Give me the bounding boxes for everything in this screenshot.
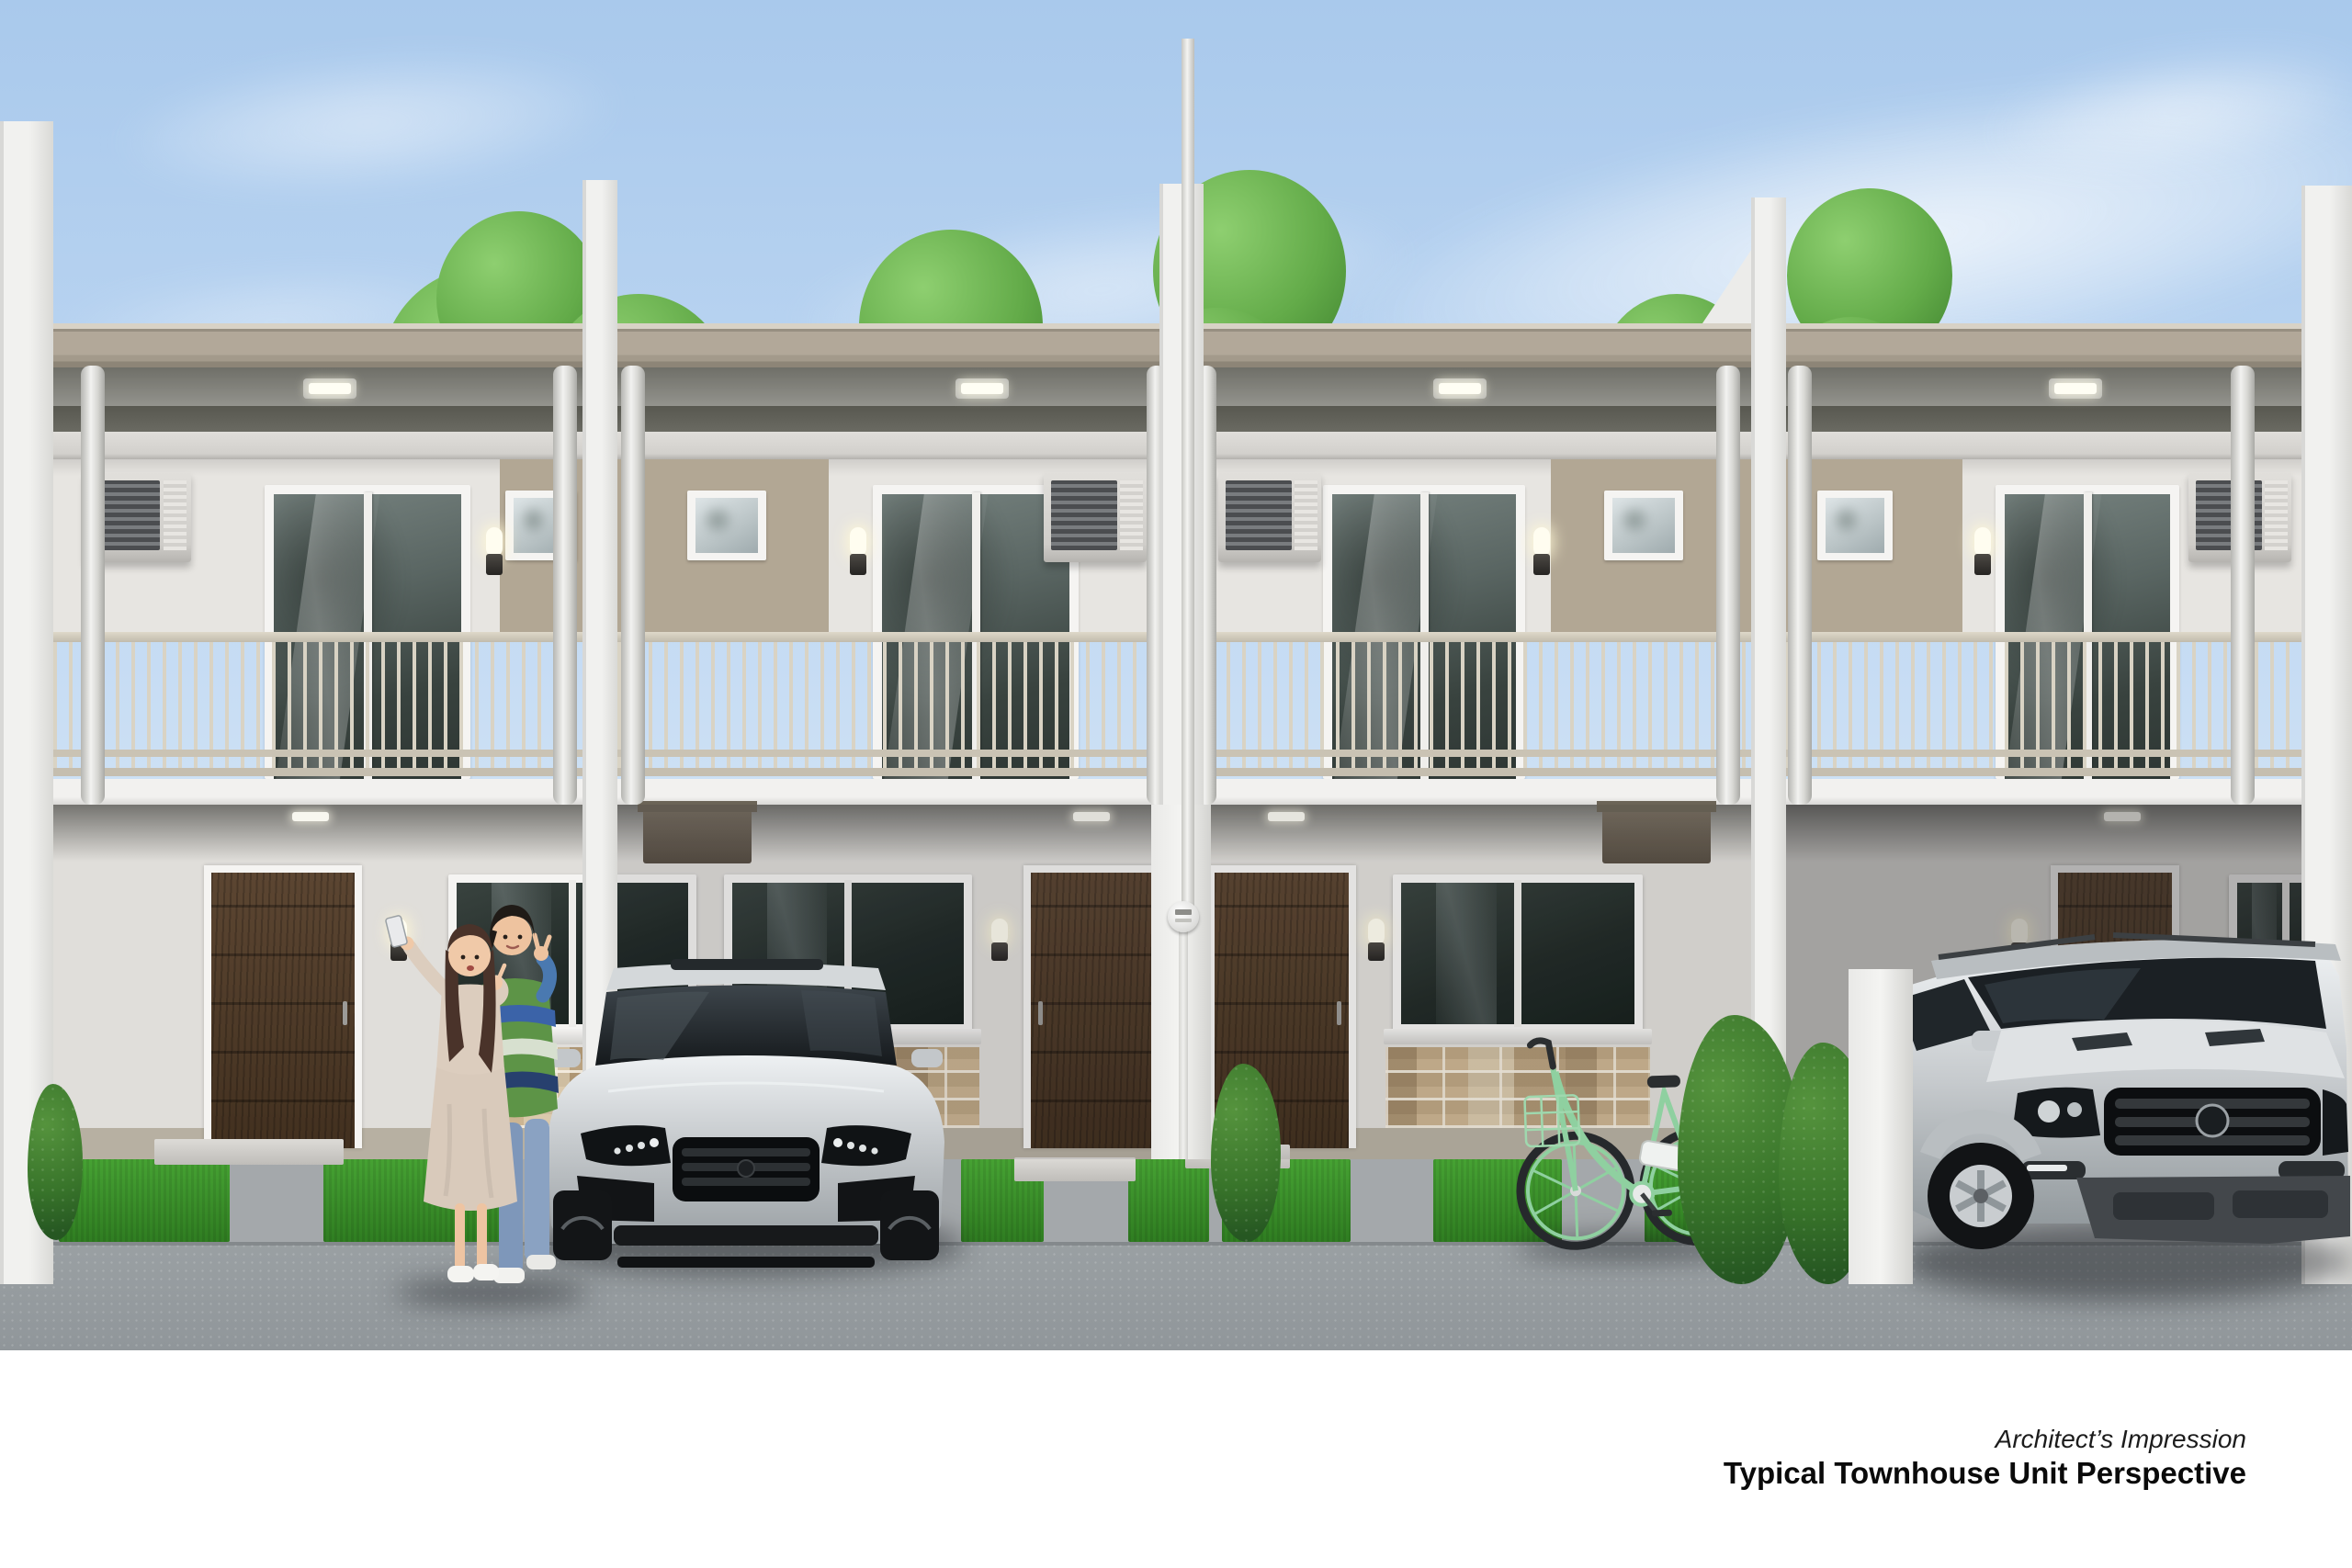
- small-window: [1604, 491, 1683, 560]
- utility-pole: [1182, 39, 1194, 909]
- entry-door: [204, 865, 362, 1148]
- porch-column: [2231, 366, 2255, 805]
- shrub: [28, 1084, 83, 1240]
- caption-band: Architect’s Impression Typical Townhouse…: [0, 1350, 2352, 1568]
- porch-downlight: [292, 812, 329, 821]
- ac-unit: [1218, 472, 1321, 562]
- wall-sconce: [1973, 527, 1992, 575]
- balcony-railing: [1211, 632, 1751, 779]
- porch-column: [553, 366, 577, 805]
- grass-strip: [1128, 1159, 1209, 1242]
- small-window: [1817, 491, 1893, 560]
- balcony-railing: [617, 632, 1151, 779]
- selfie-couple: [372, 893, 570, 1302]
- ceiling-light: [955, 378, 1009, 399]
- cloud: [106, 33, 630, 215]
- porch-column: [81, 366, 105, 805]
- caption-text: Architect’s Impression Typical Townhouse…: [1724, 1424, 2246, 1492]
- caption-subtitle: Architect’s Impression: [1724, 1424, 2246, 1455]
- meter-conduit: [1179, 931, 1188, 1159]
- architect-impression-rendering: Architect’s Impression Typical Townhouse…: [0, 0, 2352, 1568]
- ceiling-light: [303, 378, 356, 399]
- caption-title: Typical Townhouse Unit Perspective: [1724, 1455, 2246, 1492]
- wall-sconce: [1532, 527, 1551, 575]
- wall-sconce: [485, 527, 503, 575]
- silver-suv-three-quarter: [1883, 920, 2352, 1288]
- porch-column: [1788, 366, 1812, 805]
- ac-unit: [1044, 472, 1147, 562]
- shrub: [1211, 1064, 1281, 1242]
- front-step: [154, 1139, 344, 1165]
- render-photo: [0, 0, 2352, 1350]
- porch-column: [621, 366, 645, 805]
- ceiling-light: [1433, 378, 1487, 399]
- yard-wall-pier: [1849, 969, 1913, 1284]
- porch-column: [1716, 366, 1740, 805]
- small-window: [687, 491, 766, 560]
- grass-strip: [59, 1159, 230, 1242]
- electric-meter: [1168, 901, 1199, 932]
- ceiling-light: [2049, 378, 2102, 399]
- balcony-railing: [1786, 632, 2301, 779]
- front-step: [1014, 1157, 1136, 1181]
- silver-suv-front: [526, 953, 967, 1275]
- woman: [385, 915, 517, 1282]
- balcony-railing: [53, 632, 582, 779]
- wall-sconce: [849, 527, 867, 575]
